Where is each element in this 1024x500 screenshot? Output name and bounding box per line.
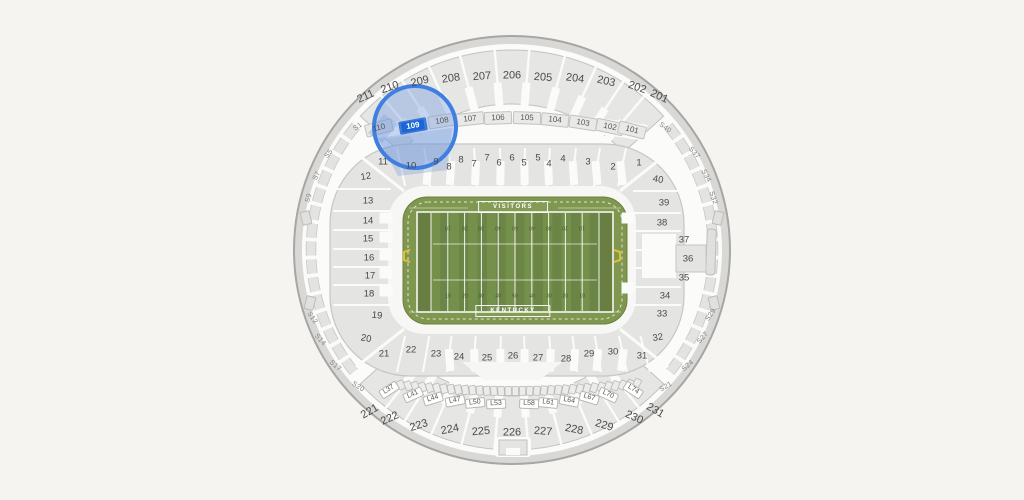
section-204[interactable]: 204	[565, 72, 585, 85]
section-6[interactable]: 6	[509, 153, 514, 163]
yard-number: 20	[462, 295, 468, 300]
section-35[interactable]: 35	[679, 273, 690, 283]
section-22[interactable]: 22	[406, 345, 417, 355]
section-227[interactable]: 227	[533, 426, 552, 439]
section-4[interactable]: 4	[546, 159, 551, 169]
section-8[interactable]: 8	[458, 155, 463, 165]
section-17[interactable]: 17	[365, 271, 376, 281]
section-3[interactable]: 3	[585, 157, 590, 167]
section-226[interactable]: 226	[503, 428, 521, 439]
section-225[interactable]: 225	[471, 426, 490, 439]
section-L58[interactable]: L58	[519, 399, 539, 410]
section-24[interactable]: 24	[454, 352, 465, 362]
section-9[interactable]: 9	[433, 157, 438, 167]
yard-number: 30	[478, 225, 484, 230]
section-26[interactable]: 26	[508, 351, 519, 361]
stadium-seat-map: 211 210 209 208 207 206 205 204 203 202 …	[0, 0, 1024, 500]
section-32[interactable]: 32	[652, 332, 664, 343]
section-10[interactable]: 10	[406, 161, 417, 171]
section-27[interactable]: 27	[533, 353, 544, 363]
section-34[interactable]: 34	[660, 291, 671, 301]
section-4[interactable]: 4	[560, 154, 565, 164]
yard-number: 30	[546, 295, 552, 300]
yard-number: 10	[445, 295, 451, 300]
section-L53[interactable]: L53	[486, 399, 506, 410]
section-14[interactable]: 14	[363, 216, 374, 226]
section-1[interactable]: 1	[636, 158, 641, 168]
section-19[interactable]: 19	[371, 311, 383, 322]
yard-number: 20	[562, 225, 568, 230]
section-40[interactable]: 40	[652, 174, 664, 185]
section-6[interactable]: 6	[496, 158, 501, 168]
section-15[interactable]: 15	[363, 234, 374, 244]
yard-number: 20	[562, 295, 568, 300]
section-38[interactable]: 38	[657, 218, 668, 228]
yard-number: 10	[579, 295, 585, 300]
yard-number: 50	[512, 295, 518, 300]
yard-number: 40	[529, 225, 535, 230]
yard-number: 40	[495, 225, 501, 230]
section-21[interactable]: 21	[379, 349, 390, 359]
section-18[interactable]: 18	[364, 289, 375, 299]
field-visitors-label: VISITORS	[478, 201, 548, 213]
section-2[interactable]: 2	[610, 162, 615, 172]
section-36[interactable]: 36	[683, 254, 694, 264]
yard-number: 20	[462, 225, 468, 230]
section-206[interactable]: 206	[503, 71, 521, 82]
section-7[interactable]: 7	[484, 153, 489, 163]
section-30[interactable]: 30	[608, 347, 619, 357]
section-13[interactable]: 13	[363, 196, 374, 206]
yard-number: 30	[478, 295, 484, 300]
section-5[interactable]: 5	[521, 158, 526, 168]
section-5[interactable]: 5	[535, 153, 540, 163]
field-kentucky-label: KENTUCKY	[475, 305, 550, 317]
section-106[interactable]: 106	[491, 114, 505, 122]
section-11[interactable]: 11	[378, 157, 388, 167]
section-107[interactable]: 107	[463, 114, 477, 123]
section-25[interactable]: 25	[482, 353, 493, 363]
yard-number: 10	[579, 225, 585, 230]
yard-number: 50	[512, 225, 518, 230]
section-L61[interactable]: L61	[538, 397, 559, 409]
yard-number: 30	[546, 225, 552, 230]
yard-number: 40	[529, 295, 535, 300]
section-7[interactable]: 7	[471, 159, 476, 169]
section-33[interactable]: 33	[657, 309, 668, 319]
section-16[interactable]: 16	[364, 253, 375, 263]
section-31[interactable]: 31	[637, 351, 648, 361]
section-12[interactable]: 12	[360, 171, 372, 182]
section-39[interactable]: 39	[659, 198, 670, 208]
section-105[interactable]: 105	[520, 114, 534, 122]
section-L50[interactable]: L50	[465, 397, 486, 409]
section-8[interactable]: 8	[446, 162, 451, 172]
yard-number: 40	[495, 295, 501, 300]
section-29[interactable]: 29	[584, 349, 595, 359]
yard-number: 10	[445, 225, 451, 230]
section-28[interactable]: 28	[561, 354, 572, 364]
section-207[interactable]: 207	[472, 71, 491, 83]
section-104[interactable]: 104	[548, 115, 562, 124]
section-20[interactable]: 20	[360, 333, 372, 344]
section-205[interactable]: 205	[533, 72, 552, 84]
section-23[interactable]: 23	[431, 349, 442, 359]
section-37[interactable]: 37	[679, 235, 690, 245]
